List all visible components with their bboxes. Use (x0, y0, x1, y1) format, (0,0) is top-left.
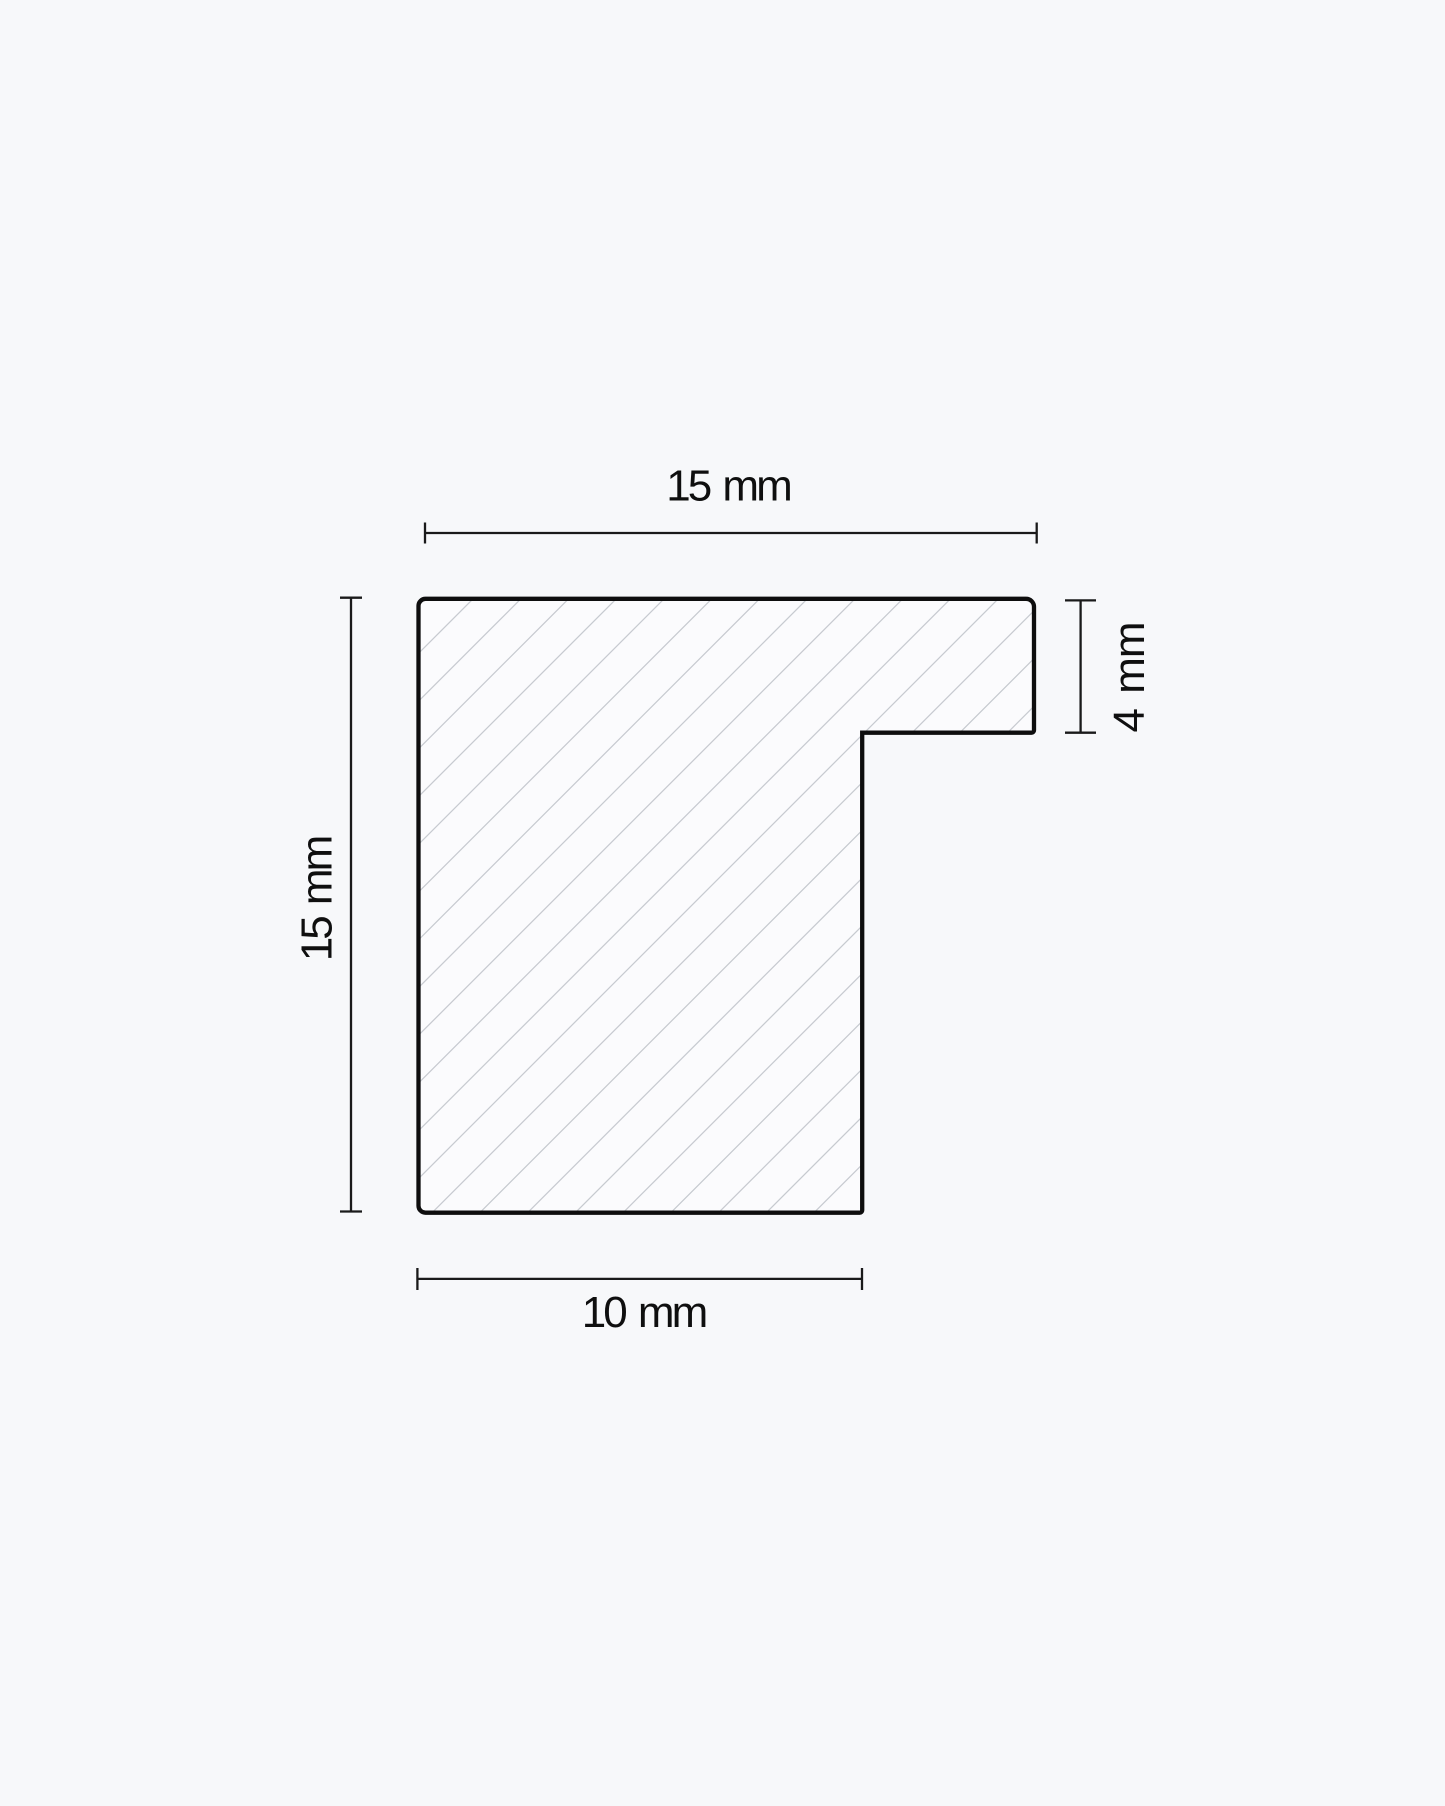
svg-text:15 mm: 15 mm (293, 837, 342, 961)
svg-text:4 mm: 4 mm (1105, 623, 1154, 733)
svg-text:15 mm: 15 mm (666, 462, 790, 511)
svg-text:10 mm: 10 mm (582, 1288, 706, 1337)
